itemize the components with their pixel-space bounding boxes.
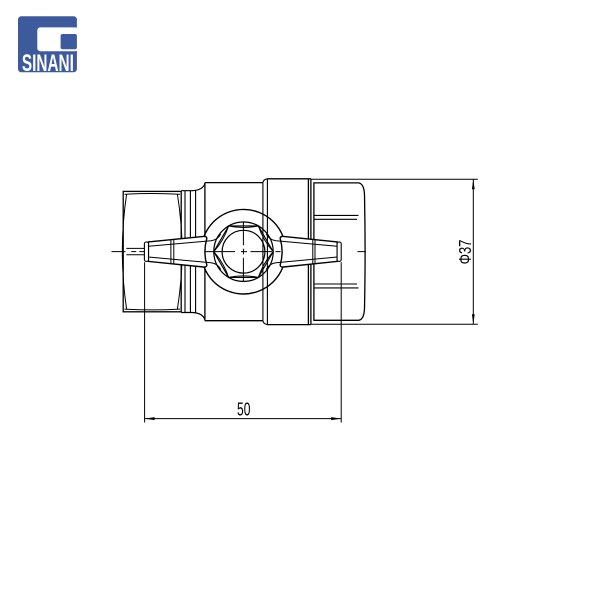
- svg-text:Φ37: Φ37: [456, 240, 475, 265]
- svg-text:SINANI: SINANI: [22, 50, 74, 78]
- svg-text:50: 50: [237, 400, 250, 420]
